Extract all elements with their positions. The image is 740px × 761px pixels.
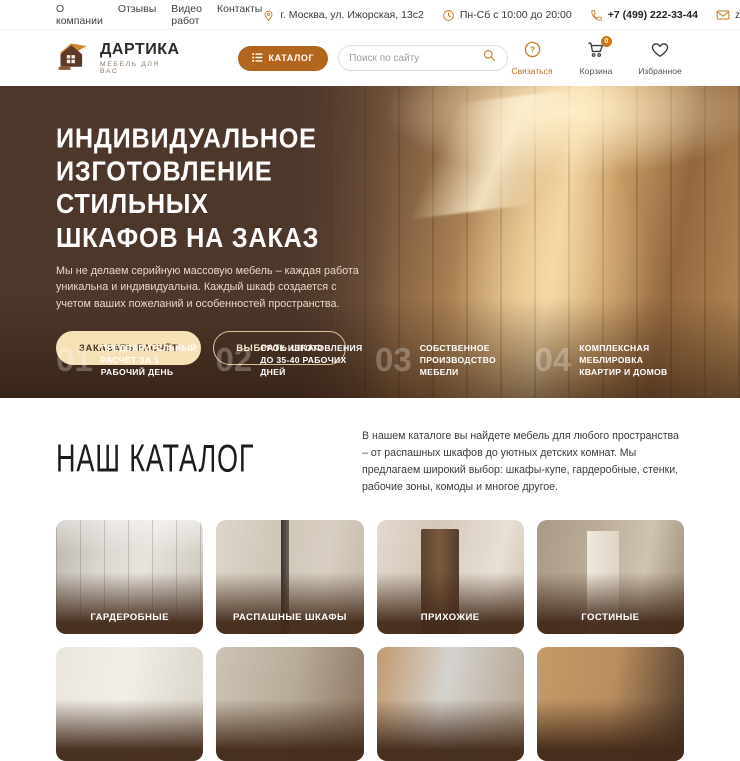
catalog-card-hinged-wardrobes[interactable]: РАСПАШНЫЕ ШКАФЫ (216, 520, 363, 634)
search-box (338, 45, 508, 71)
cart-icon (586, 46, 606, 63)
address-item: г. Москва, ул. Ижорская, 13с2 (262, 9, 424, 22)
catalog-card-label: ГОСТИНЫЕ (537, 612, 684, 623)
catalog-card-partial-1[interactable] (56, 647, 203, 761)
catalog-card-hallways[interactable]: ПРИХОЖИЕ (377, 520, 524, 634)
catalog-card-partial-3[interactable] (377, 647, 524, 761)
topbar: О компании Отзывы Видео работ Контакты г… (0, 0, 740, 30)
header: ДАРТИКА МЕБЕЛЬ ДЛЯ ВАС КАТАЛОГ ? Связать… (0, 30, 740, 86)
feature-1-number: 01 (56, 343, 93, 376)
feature-2-label: СРОК ИЗГОТОВЛЕНИЯ ДО 35-40 РАБОЧИХ ДНЕЙ (260, 342, 365, 378)
logo-subtitle: МЕБЕЛЬ ДЛЯ ВАС (100, 61, 180, 75)
feature-2-number: 02 (216, 343, 253, 376)
catalog-card-partial-4[interactable] (537, 647, 684, 761)
phone-icon (590, 9, 603, 22)
catalog-cards-row-1: ГАРДЕРОБНЫЕ РАСПАШНЫЕ ШКАФЫ ПРИХОЖИЕ ГОС… (56, 520, 684, 634)
feature-3-number: 03 (375, 343, 412, 376)
svg-text:?: ? (529, 45, 534, 55)
catalog-section: НАШ КАТАЛОГ В нашем каталоге вы найдете … (0, 398, 740, 761)
nav-videos[interactable]: Видео работ (171, 3, 202, 27)
favorites-action[interactable]: Избранное (636, 40, 684, 76)
catalog-card-wardrobes[interactable]: ГАРДЕРОБНЫЕ (56, 520, 203, 634)
catalog-button-label: КАТАЛОГ (269, 53, 315, 63)
logo-title: ДАРТИКА (100, 41, 180, 59)
topbar-nav: О компании Отзывы Видео работ Контакты (56, 3, 262, 27)
catalog-section-description: В нашем каталоге вы найдете мебель для л… (362, 428, 684, 496)
feature-3: 03 СОБСТВЕННОЕ ПРОИЗВОДСТВО МЕБЕЛИ (375, 342, 525, 378)
email-text[interactable]: zakaz@dartika.ru (735, 9, 740, 21)
contact-action[interactable]: ? Связаться (508, 40, 556, 76)
favorites-label: Избранное (638, 66, 682, 76)
hero-title: ИНДИВИДУАЛЬНОЕ ИЗГОТОВЛЕНИЕ СТИЛЬНЫХ ШКА… (56, 122, 405, 254)
nav-about[interactable]: О компании (56, 3, 103, 27)
catalog-button[interactable]: КАТАЛОГ (238, 46, 329, 71)
catalog-menu-icon (252, 53, 263, 64)
catalog-card-label: ПРИХОЖИЕ (377, 612, 524, 623)
catalog-card-label: РАСПАШНЫЕ ШКАФЫ (216, 612, 363, 623)
nav-reviews[interactable]: Отзывы (118, 3, 156, 27)
catalog-card-label: ГАРДЕРОБНЫЕ (56, 612, 203, 623)
search-input[interactable] (349, 53, 482, 64)
feature-3-label: СОБСТВЕННОЕ ПРОИЗВОДСТВО МЕБЕЛИ (420, 342, 525, 378)
search-icon[interactable] (482, 48, 497, 68)
cart-action[interactable]: 0 Корзина (572, 40, 620, 76)
question-circle-icon: ? (523, 40, 542, 64)
contact-label: Связаться (511, 66, 552, 76)
cart-count-badge: 0 (601, 36, 612, 47)
header-actions: ? Связаться 0 Корзина Избранное (508, 40, 684, 76)
mail-icon (716, 9, 730, 21)
heart-icon (650, 40, 670, 64)
feature-2: 02 СРОК ИЗГОТОВЛЕНИЯ ДО 35-40 РАБОЧИХ ДН… (216, 342, 366, 378)
email-item[interactable]: zakaz@dartika.ru (716, 9, 740, 21)
clock-icon (442, 9, 455, 22)
hero-features: 01 ПРЕДВАРИТЕЛЬНЫЙ РАСЧЁТ ЗА 1 РАБОЧИЙ Д… (56, 342, 684, 378)
feature-4-label: КОМПЛЕКСНАЯ МЕБЛИРОВКА КВАРТИР И ДОМОВ (579, 342, 684, 378)
feature-4: 04 КОМПЛЕКСНАЯ МЕБЛИРОВКА КВАРТИР И ДОМО… (535, 342, 685, 378)
logo[interactable]: ДАРТИКА МЕБЕЛЬ ДЛЯ ВАС (56, 38, 180, 79)
logo-house-icon (56, 38, 92, 79)
catalog-cards-row-2 (56, 647, 684, 761)
phone-text[interactable]: +7 (499) 222-33-44 (608, 9, 698, 21)
hero-banner: ИНДИВИДУАЛЬНОЕ ИЗГОТОВЛЕНИЕ СТИЛЬНЫХ ШКА… (0, 86, 740, 398)
topbar-info: г. Москва, ул. Ижорская, 13с2 Пн-Сб с 10… (262, 9, 740, 22)
cart-label: Корзина (580, 66, 613, 76)
phone-item[interactable]: +7 (499) 222-33-44 (590, 9, 698, 22)
nav-contacts[interactable]: Контакты (217, 3, 262, 27)
address-text: г. Москва, ул. Ижорская, 13с2 (280, 9, 424, 21)
hours-item: Пн-Сб с 10:00 до 20:00 (442, 9, 572, 22)
feature-1: 01 ПРЕДВАРИТЕЛЬНЫЙ РАСЧЁТ ЗА 1 РАБОЧИЙ Д… (56, 342, 206, 378)
catalog-card-partial-2[interactable] (216, 647, 363, 761)
catalog-card-living-rooms[interactable]: ГОСТИНЫЕ (537, 520, 684, 634)
feature-4-number: 04 (535, 343, 572, 376)
location-pin-icon (262, 9, 275, 22)
feature-1-label: ПРЕДВАРИТЕЛЬНЫЙ РАСЧЁТ ЗА 1 РАБОЧИЙ ДЕНЬ (101, 342, 206, 378)
catalog-section-title: НАШ КАТАЛОГ (56, 436, 254, 481)
hero-description: Мы не делаем серийную массовую мебель – … (56, 263, 368, 313)
hours-text: Пн-Сб с 10:00 до 20:00 (460, 9, 572, 21)
